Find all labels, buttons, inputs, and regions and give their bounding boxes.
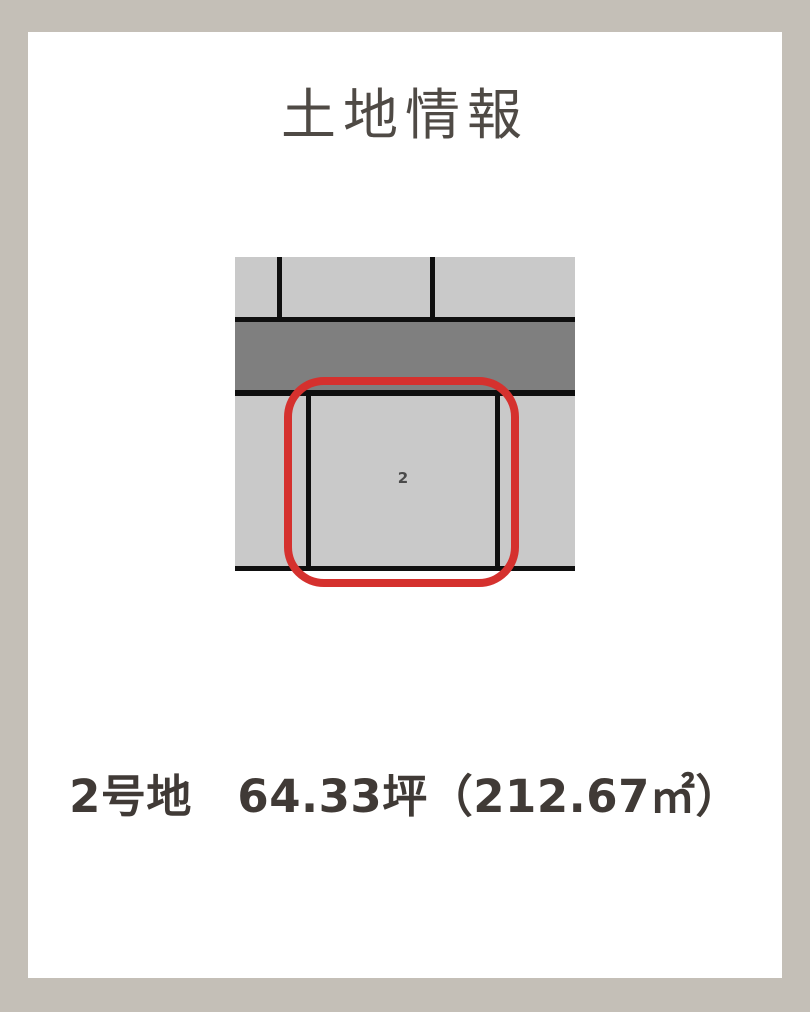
plot2-right-boundary [495,390,500,571]
land-plot-map: 2 [235,257,575,587]
boundary-line-top [235,317,575,322]
upper-parcel-divider-left [277,257,282,317]
boundary-line-bottom [235,566,575,571]
plot2-left-boundary [306,390,311,571]
page-title: 土地情報 [28,80,782,150]
upper-parcel-divider-right [430,257,435,317]
boundary-line-middle [235,390,575,396]
info-card: 土地情報 2 2号地 64.33坪（212.67㎡） [28,32,782,978]
plot-number-label: 2 [398,469,408,487]
plot-caption: 2号地 64.33坪（212.67㎡） [28,767,782,827]
